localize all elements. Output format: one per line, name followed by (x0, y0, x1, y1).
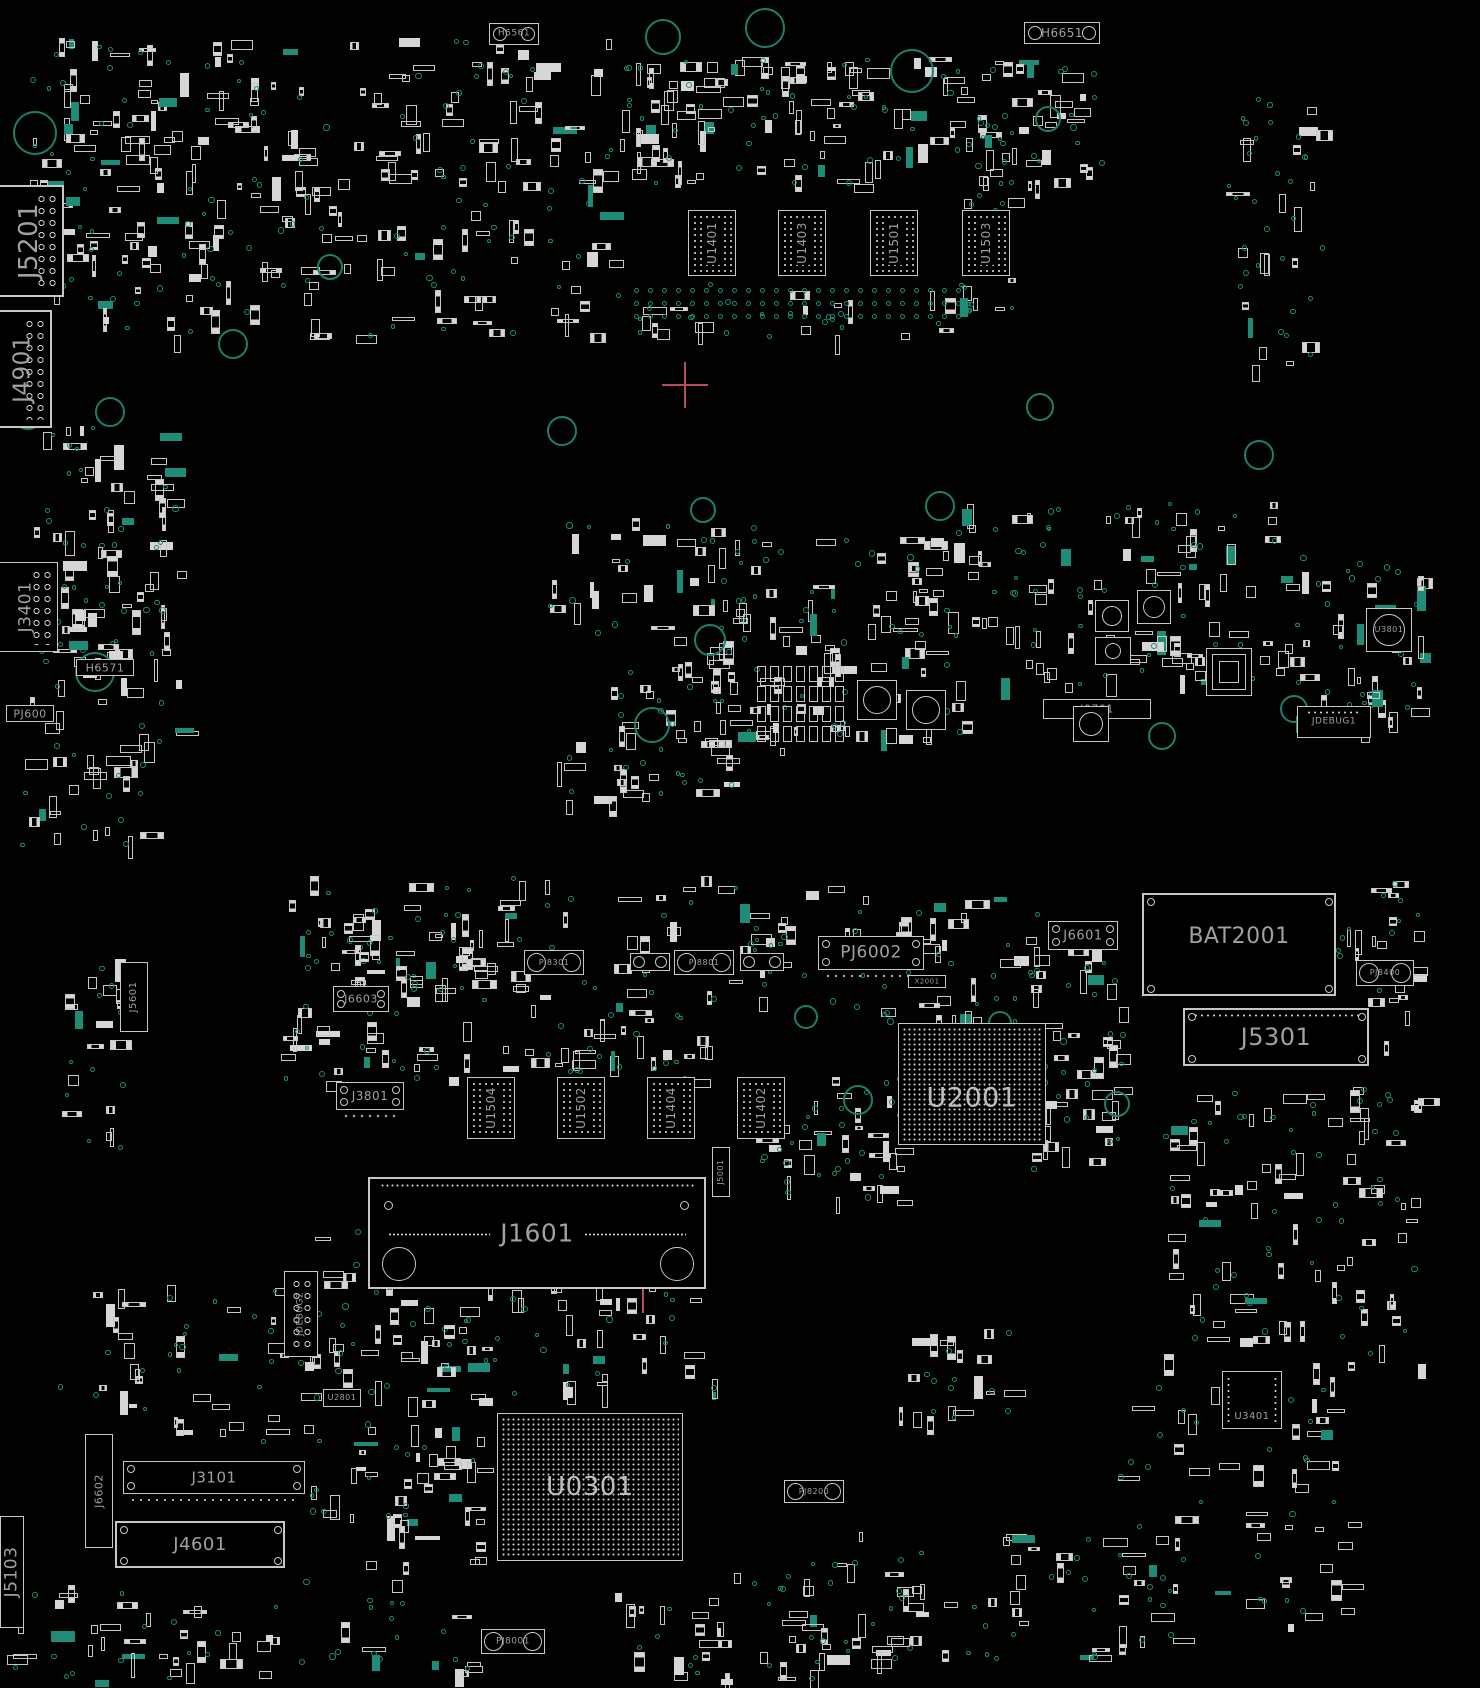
via (889, 1099, 895, 1105)
via (728, 107, 734, 113)
smd-part (1019, 127, 1029, 134)
smd-part (1348, 1522, 1361, 1529)
via (956, 69, 961, 74)
via (586, 201, 591, 206)
via (806, 1115, 810, 1119)
smd-part (1288, 1624, 1294, 1632)
smd-part (552, 580, 557, 599)
via (1267, 1447, 1272, 1452)
smd-part (802, 1624, 824, 1631)
via (443, 103, 449, 109)
smd-part (1132, 1406, 1155, 1412)
smd-part (1103, 1037, 1113, 1047)
smd-part (74, 145, 96, 152)
via (889, 624, 895, 630)
smd-part (226, 281, 231, 305)
component-label: U1403 (794, 221, 810, 265)
smd-part (393, 1335, 402, 1345)
smd-part (834, 303, 842, 308)
smd-part (151, 100, 158, 105)
smd-part (899, 735, 913, 744)
smd-part (576, 742, 586, 753)
smd-part (1418, 636, 1424, 660)
pad (822, 666, 831, 682)
smd-part (1361, 1309, 1368, 1326)
smd-part (411, 1425, 419, 1447)
component-label: U2801 (328, 1394, 357, 1402)
smd-part (803, 1586, 815, 1596)
smd-part (127, 688, 145, 698)
smd-part (766, 589, 777, 599)
via (205, 63, 210, 68)
via (83, 187, 87, 191)
smd-part (476, 1542, 485, 1552)
via (1092, 1608, 1097, 1613)
smd-part (632, 518, 640, 531)
via (78, 225, 82, 229)
smd-part (351, 1468, 356, 1484)
via (1398, 898, 1403, 903)
pad (835, 666, 844, 682)
smd-part (148, 246, 157, 256)
via (168, 1352, 172, 1356)
smd-part (931, 538, 945, 546)
smd-part (944, 1602, 959, 1607)
smd-part (1168, 1234, 1186, 1241)
smd-part (594, 1034, 616, 1039)
mounting-hole (1148, 722, 1176, 750)
smd-part (633, 1334, 646, 1340)
smd-part (68, 1075, 79, 1086)
smd-part (901, 917, 912, 937)
component-pj8400: PJ8400 (1356, 960, 1414, 986)
via (13, 1665, 18, 1670)
smd-part (95, 459, 100, 482)
component-h6651: H6651 (1024, 22, 1100, 44)
smd-part (1209, 622, 1220, 637)
via (1108, 1031, 1114, 1037)
via (667, 1607, 671, 1611)
via (1256, 97, 1261, 102)
via (815, 1660, 819, 1664)
smd-part (295, 171, 303, 191)
smd-part (856, 731, 867, 742)
smd-part (1357, 624, 1365, 645)
corner-pin (340, 1098, 348, 1106)
via (120, 1591, 124, 1595)
smd-part (1417, 687, 1422, 699)
via (441, 1629, 446, 1634)
smd-part (381, 267, 395, 276)
corner-pin (293, 1465, 301, 1473)
smd-part (1347, 1154, 1355, 1165)
smd-part (479, 930, 483, 949)
smd-part (640, 685, 650, 694)
via (859, 1150, 865, 1156)
component-label: J6603 (344, 994, 378, 1005)
via (966, 1651, 970, 1655)
smd-part (1220, 574, 1227, 591)
via (628, 670, 633, 675)
smd-part (1156, 1536, 1169, 1546)
smd-part (960, 298, 968, 316)
smd-part (1074, 108, 1091, 118)
via (281, 283, 286, 288)
smd-part (467, 1346, 477, 1355)
component-conn-a (630, 953, 670, 971)
via (1197, 543, 1203, 549)
via (1296, 134, 1302, 140)
smd-part (1008, 198, 1025, 208)
smd-part (404, 1479, 412, 1489)
via (568, 896, 574, 902)
smd-part (462, 229, 469, 252)
smd-part (644, 585, 653, 601)
smd-part (1331, 1580, 1342, 1601)
via (1333, 1202, 1339, 1208)
component-label: H6651 (1041, 27, 1083, 39)
via (830, 314, 835, 319)
via (510, 330, 516, 336)
via (548, 239, 552, 243)
via (1308, 296, 1313, 301)
via (752, 539, 757, 544)
via (569, 789, 574, 794)
via (1035, 912, 1040, 917)
smd-part (117, 186, 140, 192)
component-label: H6561 (498, 30, 530, 39)
via (1031, 153, 1037, 159)
switch-plunger (1105, 643, 1121, 659)
smd-part (101, 160, 120, 165)
component-label: U1401 (704, 221, 720, 265)
smd-part (67, 254, 89, 262)
via (1140, 668, 1144, 672)
smd-part (1032, 1153, 1041, 1163)
component-label: J5103 (4, 1547, 21, 1598)
via (67, 471, 71, 475)
smd-part (1175, 1538, 1180, 1551)
smd-part (684, 1054, 695, 1059)
via (63, 540, 69, 546)
smd-part (670, 922, 676, 942)
smd-part (375, 1381, 382, 1406)
smd-part (186, 171, 193, 195)
via (952, 1377, 957, 1382)
smd-part (926, 568, 943, 576)
smd-part (557, 762, 562, 786)
smd-part (217, 200, 226, 219)
smd-part (994, 897, 1007, 902)
via (1058, 69, 1064, 75)
smd-part (172, 131, 183, 142)
smd-part (930, 137, 948, 145)
via (858, 288, 863, 293)
smd-part (933, 590, 945, 597)
via (746, 141, 751, 146)
via (1116, 1137, 1120, 1141)
via (167, 1676, 171, 1680)
via (605, 154, 610, 159)
smd-part (317, 1026, 331, 1036)
smd-part (984, 1329, 995, 1339)
smd-part (232, 1632, 240, 1641)
smd-part (1251, 1203, 1258, 1219)
via (879, 1174, 884, 1179)
smd-part (376, 156, 398, 160)
corner-pin (120, 1557, 128, 1565)
via (1266, 1252, 1272, 1258)
via (865, 1194, 871, 1200)
via (521, 98, 527, 104)
via (143, 607, 149, 613)
smd-part (459, 178, 467, 187)
smd-part (126, 155, 150, 165)
smd-part (132, 115, 149, 123)
component-j5103: J5103 (0, 1516, 24, 1628)
via (1208, 1121, 1212, 1125)
smd-part (1036, 971, 1045, 979)
smd-part (711, 681, 719, 693)
via (444, 913, 448, 917)
smd-part (893, 628, 918, 632)
via (58, 1384, 64, 1390)
via (208, 197, 214, 203)
smd-part (88, 1645, 94, 1657)
smd-part (114, 445, 124, 470)
smd-part (669, 81, 679, 89)
via (760, 87, 765, 92)
smd-part (1012, 515, 1033, 524)
smd-part (214, 225, 224, 239)
smd-part (146, 1613, 151, 1628)
via (595, 630, 601, 636)
smd-part (780, 1662, 787, 1680)
via (314, 959, 319, 964)
via (977, 193, 982, 198)
smd-part (685, 1365, 696, 1379)
via (1056, 1094, 1061, 1099)
via (593, 986, 597, 990)
smd-part (1293, 145, 1302, 155)
smd-part (1019, 1621, 1030, 1626)
smd-part (667, 90, 678, 102)
via (355, 1229, 361, 1235)
smd-part (1300, 674, 1320, 681)
smd-part (140, 832, 164, 839)
smd-part (1197, 1142, 1205, 1166)
via (1242, 1114, 1247, 1119)
smd-part (901, 333, 909, 340)
smd-part (1088, 600, 1093, 614)
via (445, 886, 449, 890)
via (597, 1054, 602, 1059)
smd-part (304, 1425, 314, 1434)
smd-part (606, 39, 612, 50)
via (478, 63, 484, 69)
smd-part (1290, 657, 1306, 666)
pad (809, 666, 818, 682)
via (854, 1004, 860, 1010)
component-label: H6571 (86, 662, 125, 673)
smd-part (1080, 970, 1086, 994)
smd-part (401, 121, 421, 128)
smd-part (220, 1659, 244, 1670)
via (741, 597, 746, 602)
pad (796, 666, 805, 682)
smd-part (592, 243, 611, 250)
pad (796, 706, 805, 722)
smd-part (945, 298, 956, 314)
via (172, 505, 178, 511)
via (431, 282, 437, 288)
smd-part (523, 182, 542, 191)
smd-part (227, 1307, 241, 1313)
smd-part (129, 1404, 136, 1409)
via (1403, 1329, 1408, 1334)
smd-part (785, 62, 807, 66)
smd-part (432, 1340, 440, 1346)
via (314, 1488, 318, 1492)
via (1114, 513, 1120, 519)
via (154, 545, 159, 550)
smd-part (159, 498, 166, 518)
smd-part (863, 1186, 875, 1191)
via (120, 1082, 126, 1088)
smd-part (1031, 985, 1042, 993)
smd-part (1260, 253, 1269, 274)
via (1254, 136, 1258, 140)
smd-part (1282, 1577, 1290, 1588)
smd-part (685, 662, 692, 679)
smd-part (1377, 941, 1387, 949)
smd-part (1219, 1190, 1233, 1196)
smd-part (364, 1057, 370, 1068)
smd-part (1012, 1535, 1035, 1543)
via (1332, 1500, 1336, 1504)
mounting-hole (843, 1085, 873, 1115)
via (1284, 333, 1289, 338)
smd-part (899, 1407, 903, 1427)
via (411, 986, 417, 992)
via (907, 554, 913, 560)
via (90, 1067, 96, 1073)
via (326, 891, 331, 896)
smd-part (66, 134, 85, 143)
smd-part (1307, 107, 1318, 116)
mounting-hole (1035, 106, 1061, 132)
via (228, 230, 233, 235)
smd-part (7, 1655, 28, 1665)
smd-part (511, 257, 518, 264)
smd-part (122, 518, 135, 525)
smd-part (902, 657, 909, 670)
via (547, 206, 552, 211)
pin-row (129, 1497, 299, 1503)
via (695, 1671, 699, 1675)
via (655, 1634, 660, 1639)
smd-part (765, 120, 771, 133)
via (724, 330, 730, 336)
smd-part (1119, 1007, 1129, 1022)
smd-part (796, 76, 807, 83)
via (1010, 306, 1015, 311)
via (666, 155, 672, 161)
via (739, 561, 743, 565)
via (367, 940, 373, 946)
smd-part (942, 940, 947, 951)
via (942, 314, 947, 319)
via (1128, 1459, 1134, 1465)
via (686, 82, 692, 88)
component-pj6002: PJ6002 (818, 936, 924, 970)
smd-part (657, 329, 669, 339)
pad (783, 666, 792, 682)
via (774, 288, 779, 293)
via (886, 288, 891, 293)
smd-part (622, 593, 637, 603)
smd-part (89, 510, 96, 520)
smd-part (1195, 671, 1206, 681)
via (975, 163, 981, 169)
smd-part (1229, 631, 1249, 638)
smd-part (314, 188, 320, 202)
via (321, 1509, 326, 1514)
smd-part (778, 923, 785, 933)
barrel-pin (769, 956, 781, 968)
smd-part (175, 728, 194, 732)
smd-part (736, 609, 745, 617)
pad (770, 686, 779, 702)
pad (757, 706, 766, 722)
via (1213, 1284, 1219, 1290)
smd-part (401, 978, 407, 998)
smd-part (836, 1197, 840, 1213)
via (616, 293, 621, 298)
smd-part (500, 900, 521, 907)
via (157, 285, 163, 291)
via (844, 288, 849, 293)
smd-part (900, 537, 925, 544)
via (690, 301, 695, 306)
via (693, 1655, 698, 1660)
via (1200, 1317, 1206, 1323)
switch-plunger (1102, 606, 1122, 626)
via (114, 639, 118, 643)
smd-part (656, 895, 666, 901)
via (662, 301, 667, 306)
smd-part (1181, 1194, 1190, 1208)
smd-part (971, 978, 976, 1002)
smd-part (135, 287, 141, 294)
smd-part (1405, 1011, 1410, 1026)
via (867, 157, 873, 163)
smd-part (434, 1473, 456, 1480)
via (638, 330, 643, 335)
smd-part (718, 1640, 733, 1648)
component-label: J5601 (129, 982, 139, 1013)
smd-part (880, 1186, 899, 1193)
via (1416, 913, 1420, 917)
via (1232, 1091, 1237, 1096)
smd-part (400, 1520, 409, 1533)
smd-part (1386, 1140, 1406, 1146)
smd-part (611, 534, 621, 540)
via (268, 1328, 274, 1334)
via (1377, 1177, 1382, 1182)
smd-part (1276, 668, 1284, 676)
component-u1504: U1504 (467, 1077, 515, 1139)
